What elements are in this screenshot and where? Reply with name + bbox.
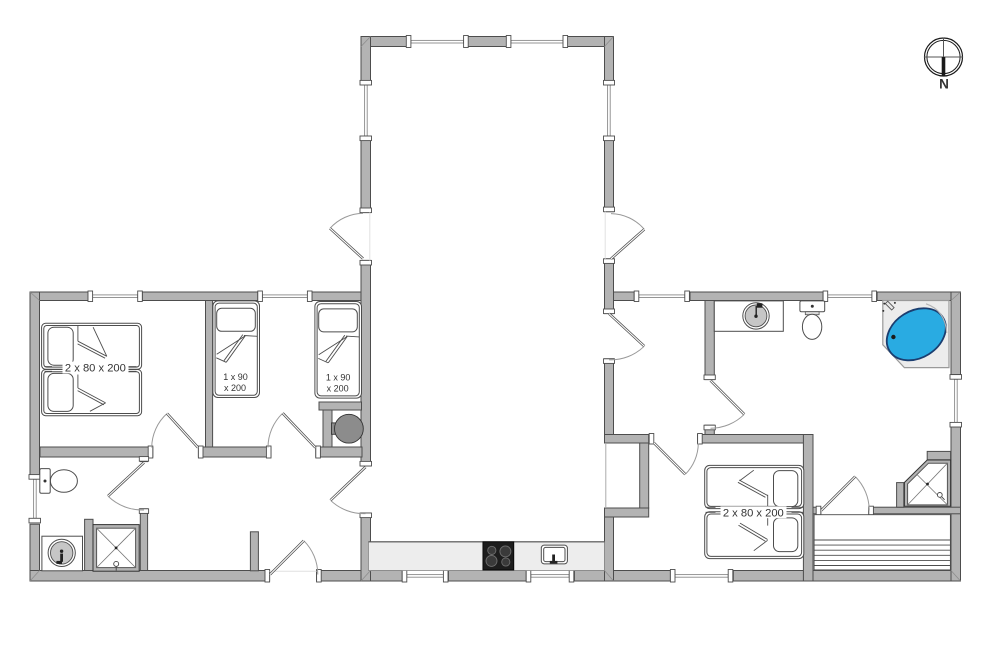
svg-text:N: N bbox=[939, 77, 949, 92]
svg-text:2 x 80 x 200: 2 x 80 x 200 bbox=[723, 507, 784, 519]
svg-text:x 200: x 200 bbox=[224, 383, 246, 393]
svg-text:x 200: x 200 bbox=[327, 384, 349, 394]
svg-text:1 x 90: 1 x 90 bbox=[223, 372, 248, 382]
svg-text:2 x 80 x 200: 2 x 80 x 200 bbox=[65, 363, 126, 375]
svg-text:1 x 90: 1 x 90 bbox=[326, 373, 351, 383]
